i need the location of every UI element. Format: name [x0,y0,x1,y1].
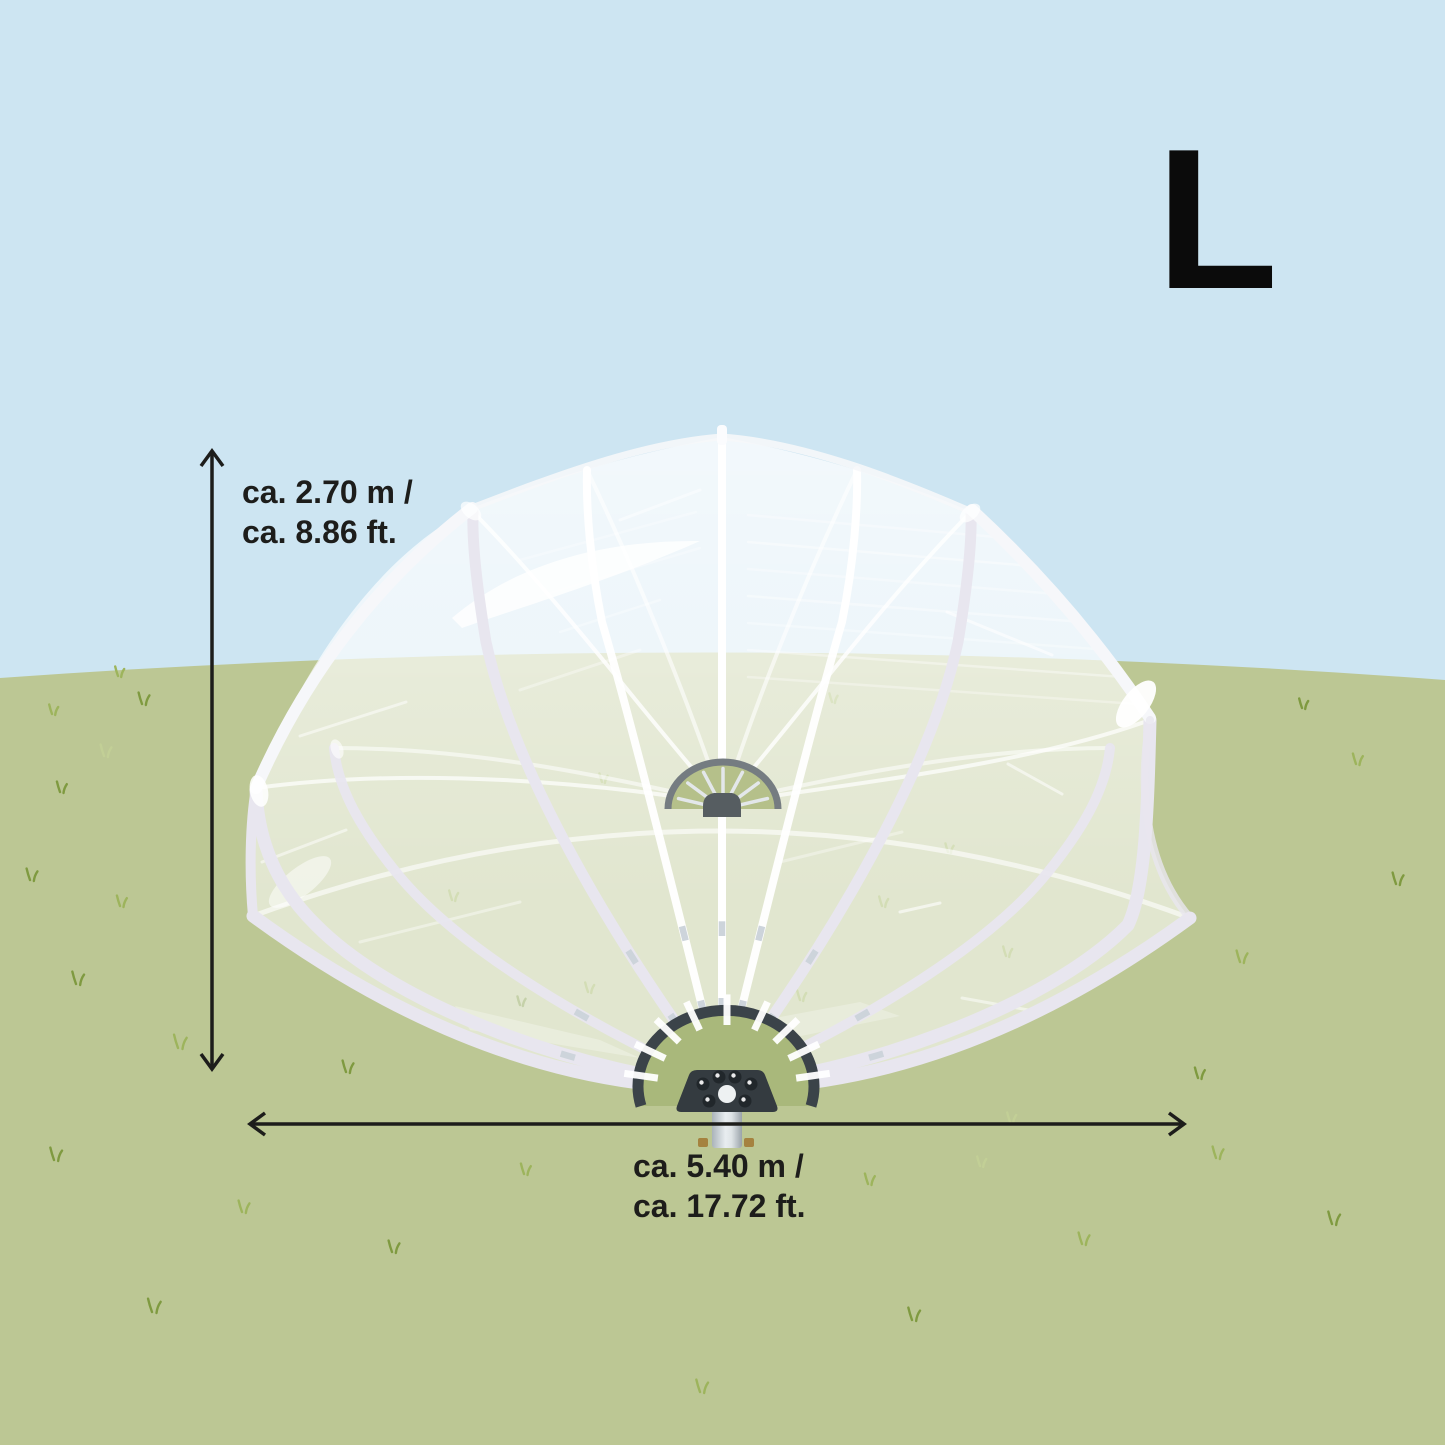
apex-cap [717,425,727,445]
width-dimension-label: ca. 5.40 m / ca. 17.72 ft. [633,1146,806,1226]
illustration-canvas: ca. 2.70 m / ca. 8.86 ft. ca. 5.40 m / c… [0,0,1445,1445]
front-fan-joint [796,1073,830,1078]
width-metric-value: ca. 5.40 m / [633,1146,806,1186]
hub-bolt-glint [741,1097,745,1101]
bow-joint [682,926,686,940]
hub-bolt-glint [731,1073,735,1077]
width-imperial-value: ca. 17.72 ft. [633,1186,806,1226]
size-letter-badge: L [1156,120,1278,320]
hub-bolt-glint [705,1097,709,1101]
rear-hub-plate [703,793,741,817]
hub-bolt-glint [747,1080,751,1084]
hub-bolt-glint [715,1073,719,1077]
hub-bolt-glint [699,1080,703,1084]
ground-anchor-cylinder [712,1110,742,1148]
bow-joint [869,1054,883,1058]
hub-center-pin [718,1085,736,1103]
height-metric-value: ca. 2.70 m / [242,472,413,512]
height-dimension-label: ca. 2.70 m / ca. 8.86 ft. [242,472,413,552]
front-fan-joint [624,1073,658,1078]
height-imperial-value: ca. 8.86 ft. [242,512,413,552]
bow-joint [758,926,762,940]
bow-joint [561,1054,575,1058]
